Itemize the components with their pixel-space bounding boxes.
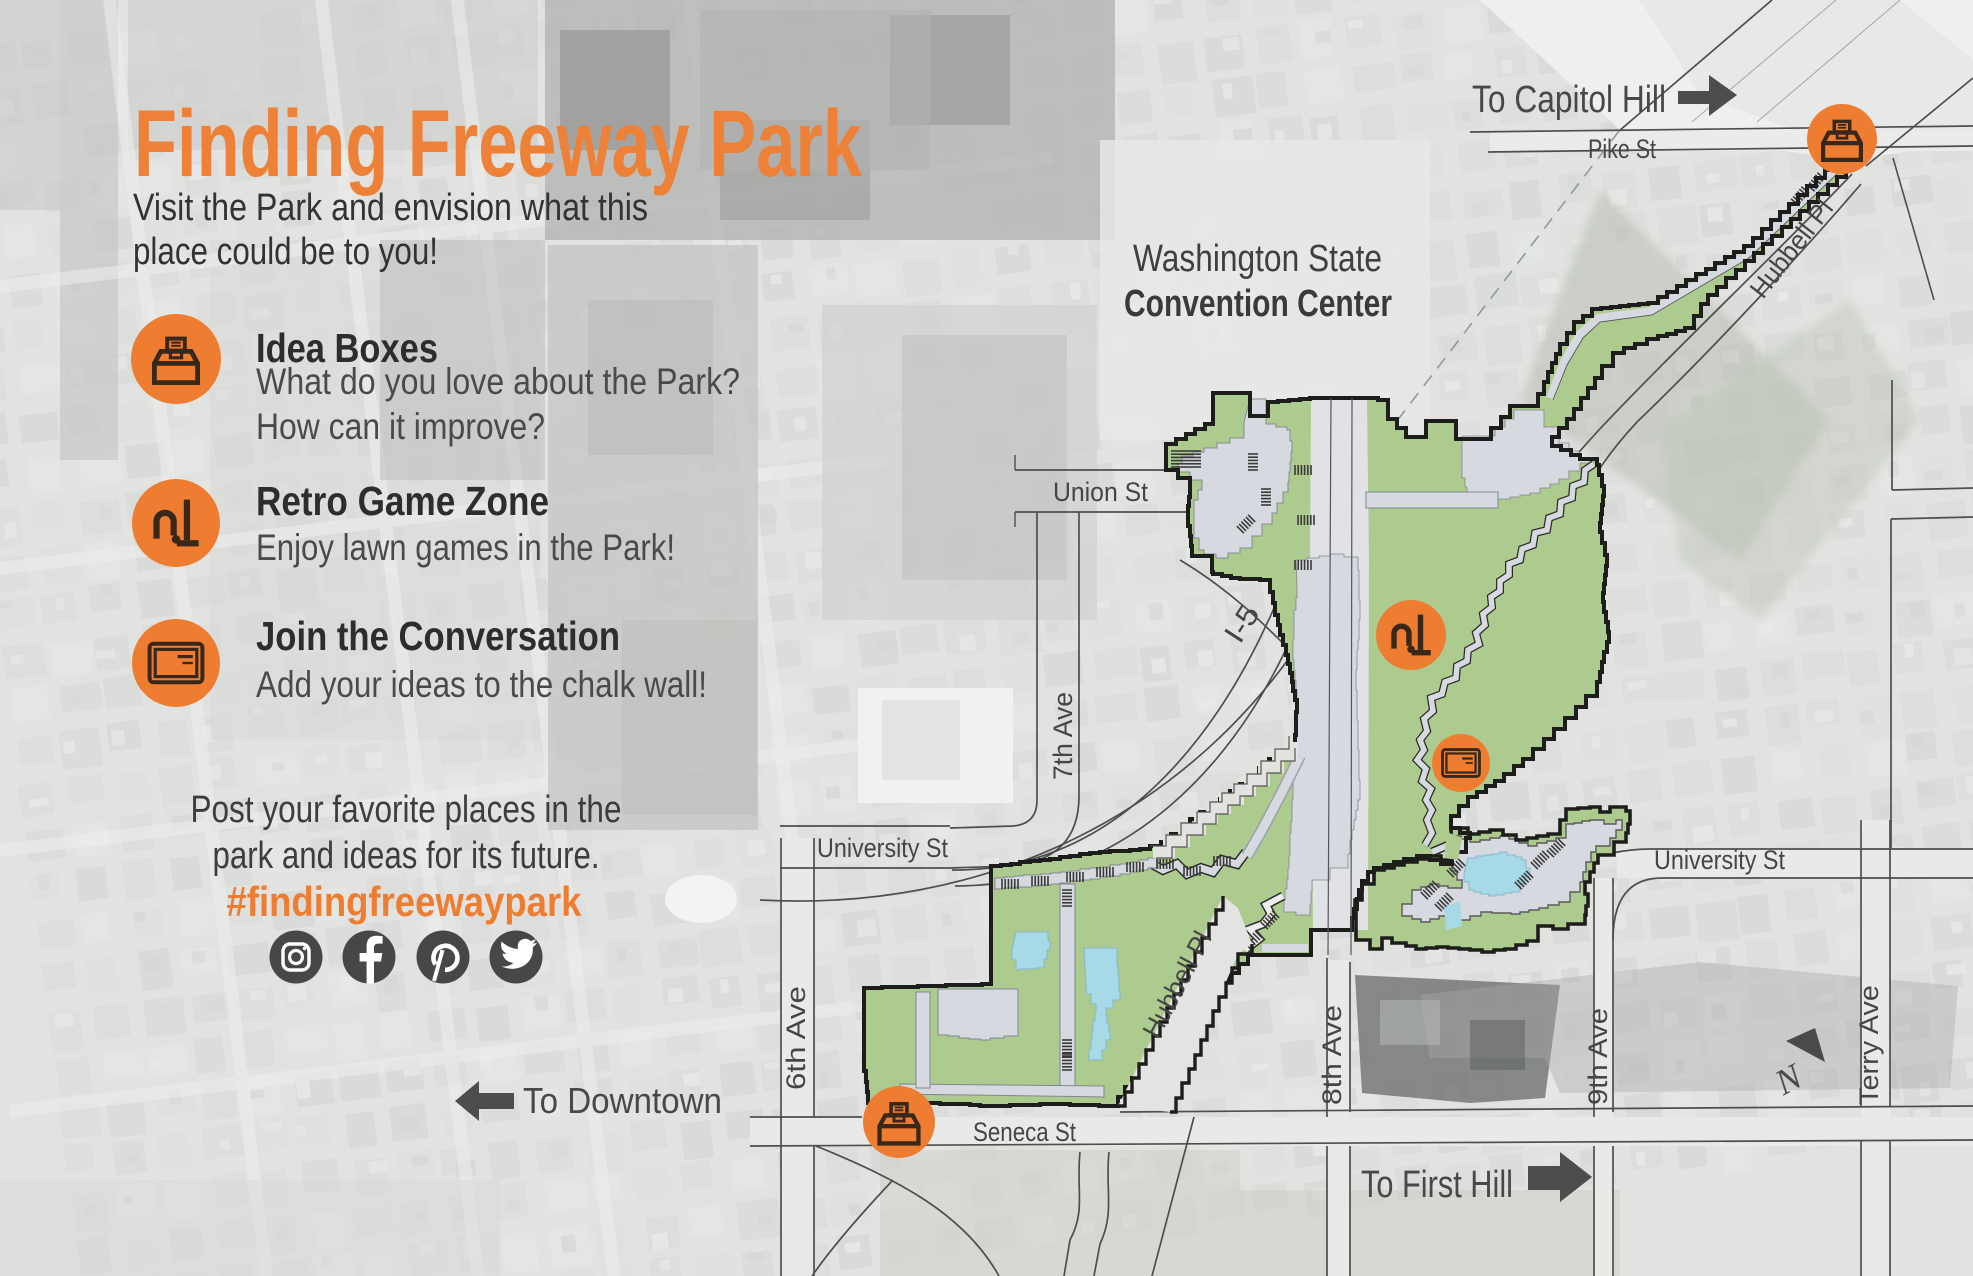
svg-text:place could be to you!: place could be to you! [133,231,438,273]
svg-text:Post your favorite places in t: Post your favorite places in the [191,789,622,831]
svg-text:To Downtown: To Downtown [523,1080,722,1121]
svg-text:6th Ave: 6th Ave [781,986,811,1090]
svg-text:8th Ave: 8th Ave [1317,1005,1347,1105]
svg-text:Terry Ave: Terry Ave [1854,985,1884,1105]
svg-text:park and ideas for its future.: park and ideas for its future. [213,835,600,877]
svg-text:To First Hill: To First Hill [1361,1164,1513,1206]
svg-text:Finding Freeway Park: Finding Freeway Park [134,91,862,197]
svg-text:Convention Center: Convention Center [1124,283,1392,325]
svg-text:#findingfreewaypark: #findingfreewaypark [227,878,583,925]
svg-text:Seneca St: Seneca St [973,1117,1076,1147]
svg-text:Enjoy lawn games in the Park!: Enjoy lawn games in the Park! [256,527,675,568]
svg-text:Join the Conversation: Join the Conversation [256,613,620,659]
svg-text:9th Ave: 9th Ave [1583,1008,1613,1105]
svg-text:7th Ave: 7th Ave [1048,692,1078,780]
svg-text:University St: University St [1654,845,1785,875]
svg-text:To Capitol Hill: To Capitol Hill [1472,79,1666,121]
svg-text:Visit the Park and envision wh: Visit the Park and envision what this [133,187,648,229]
svg-text:Pike St: Pike St [1588,134,1656,164]
svg-text:Add your ideas to the chalk wa: Add your ideas to the chalk wall! [256,664,707,705]
svg-text:Washington State: Washington State [1133,238,1382,280]
svg-text:How can it improve?: How can it improve? [256,406,545,447]
svg-text:What do you love about the Par: What do you love about the Park? [256,361,740,402]
svg-text:University St: University St [817,833,948,863]
svg-text:Retro Game Zone: Retro Game Zone [256,478,549,524]
svg-text:Union St: Union St [1053,477,1148,507]
